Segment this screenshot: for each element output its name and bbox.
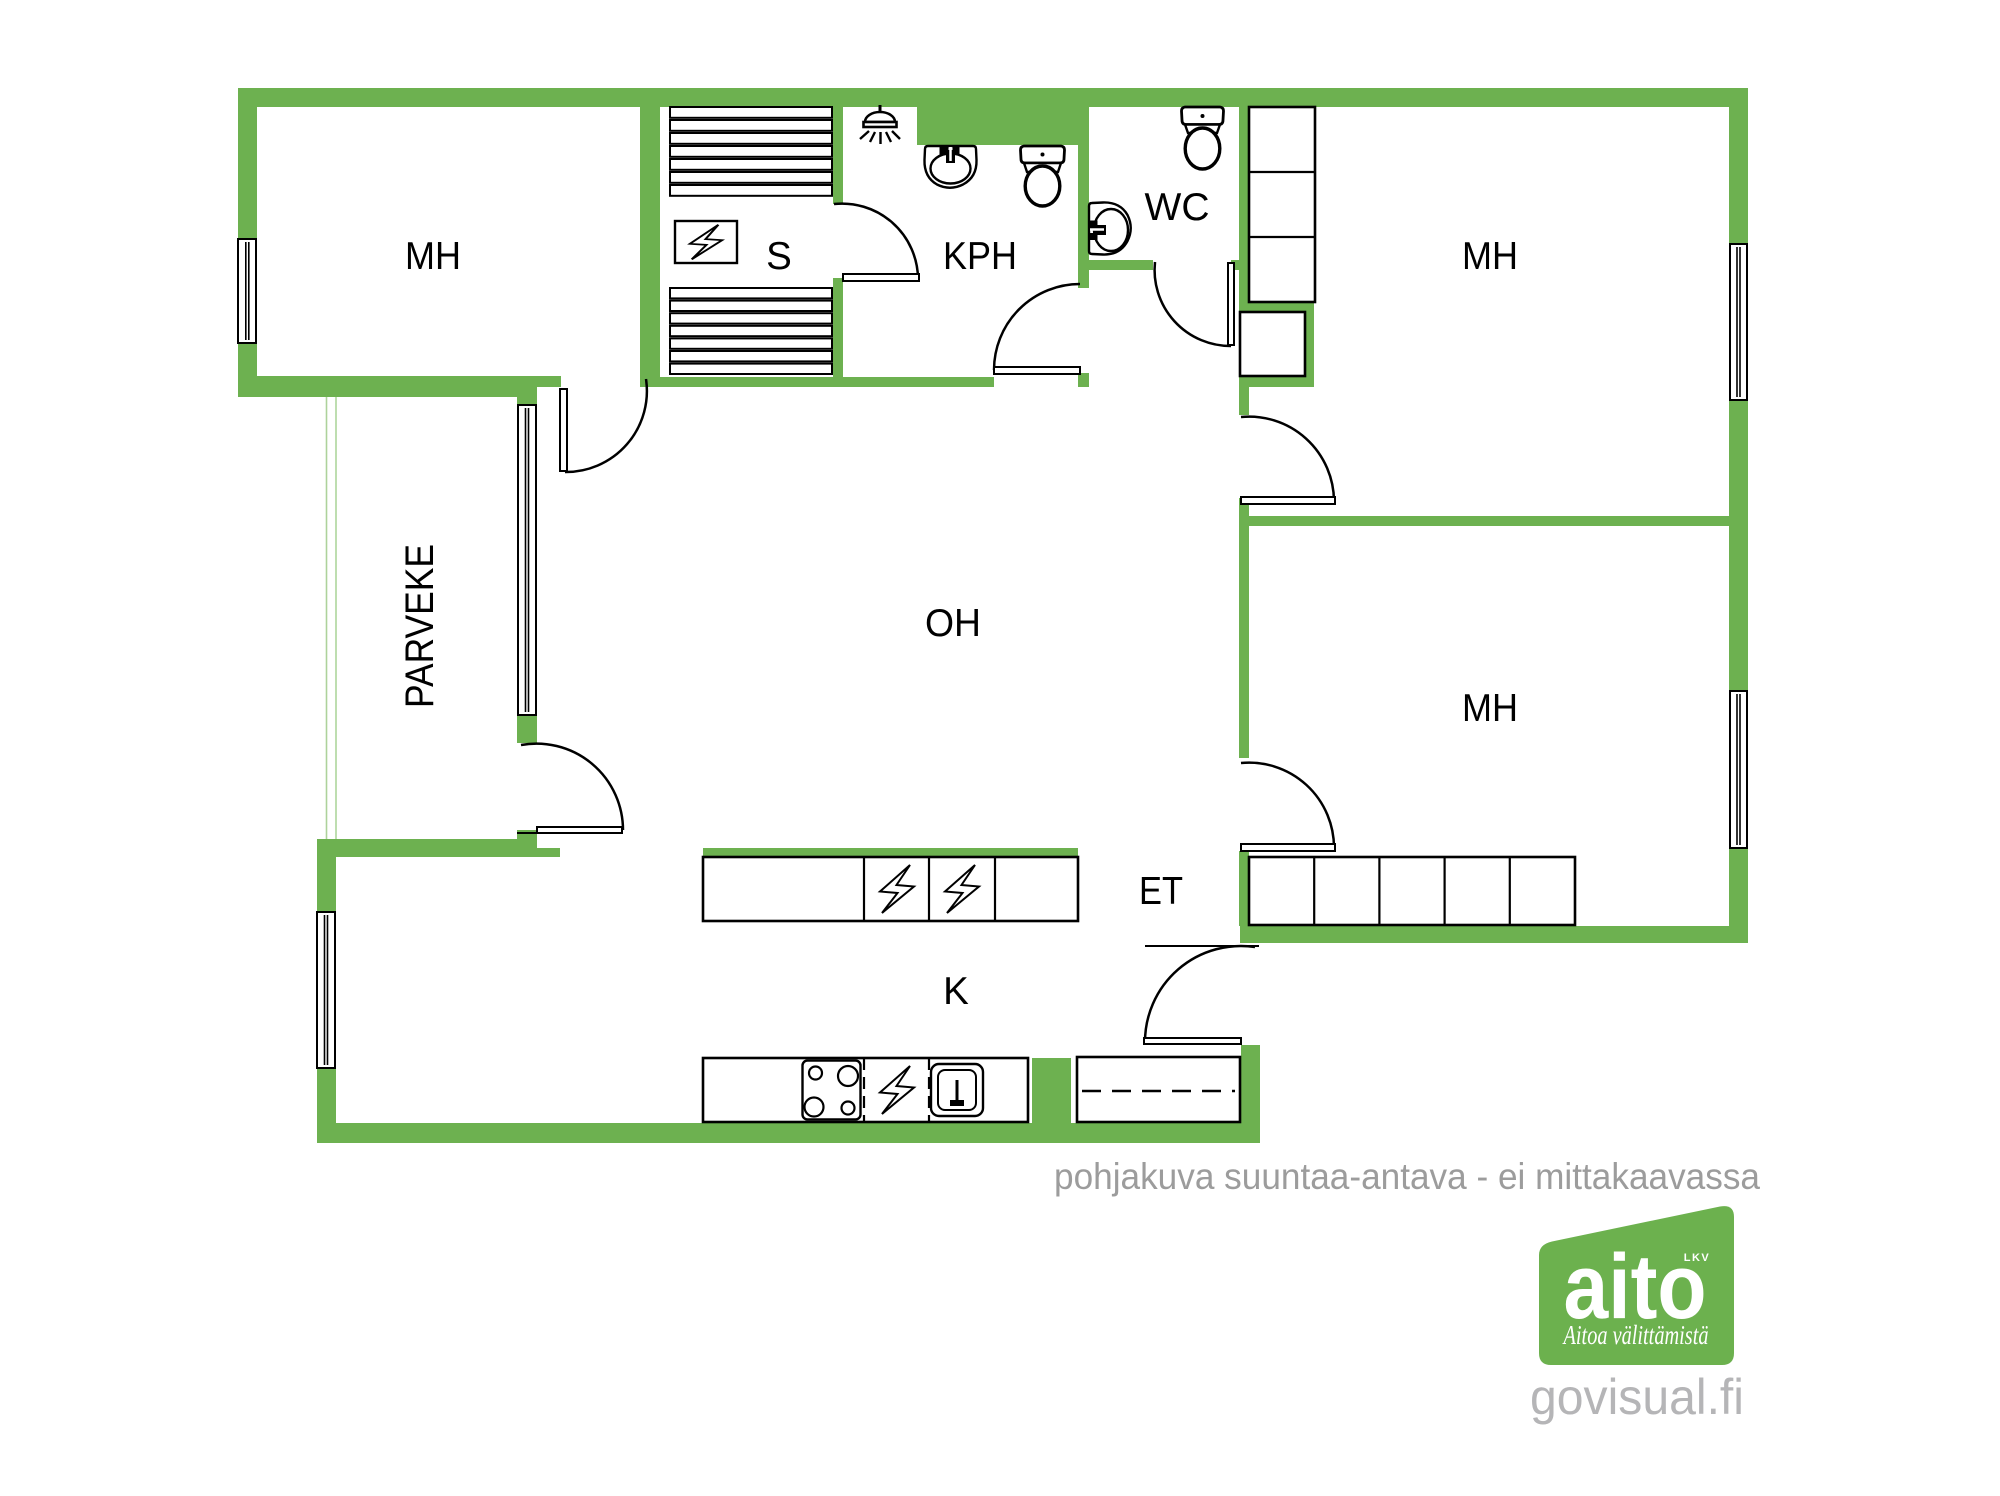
svg-text:K: K [943, 970, 969, 1013]
svg-text:MH: MH [1462, 687, 1518, 730]
svg-text:ET: ET [1139, 870, 1183, 913]
svg-text:MH: MH [405, 235, 461, 278]
svg-text:PARVEKE: PARVEKE [398, 544, 442, 708]
svg-text:WC: WC [1145, 186, 1210, 229]
svg-text:OH: OH [925, 602, 981, 645]
svg-text:KPH: KPH [943, 235, 1017, 278]
svg-text:S: S [766, 235, 792, 278]
svg-text:LKV: LKV [1684, 1252, 1711, 1264]
svg-text:MH: MH [1462, 235, 1518, 278]
svg-text:pohjakuva suuntaa-antava - ei: pohjakuva suuntaa-antava - ei mittakaava… [1054, 1156, 1760, 1197]
svg-text:govisual.fi: govisual.fi [1530, 1369, 1744, 1425]
svg-text:Aitoa välittämistä: Aitoa välittämistä [1562, 1320, 1709, 1350]
